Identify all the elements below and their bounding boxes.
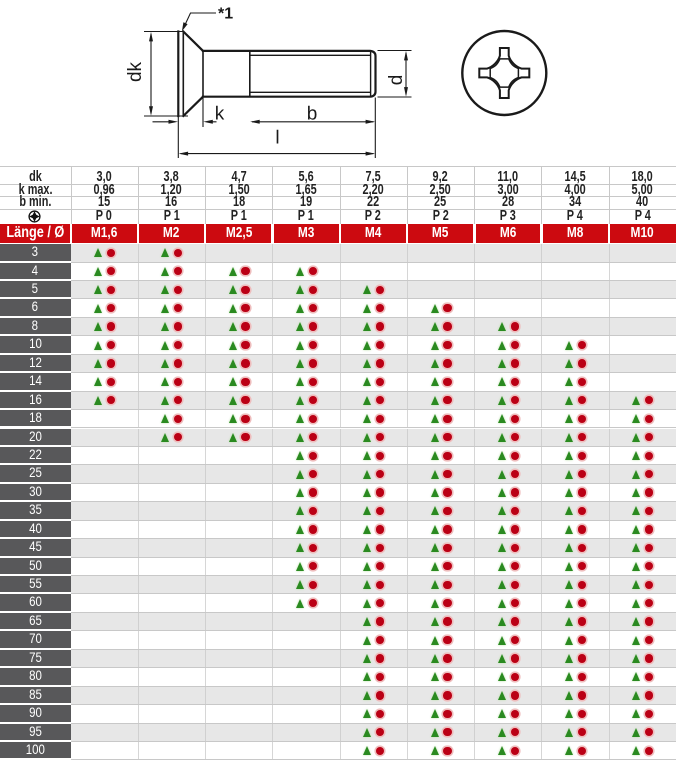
svg-text:b: b <box>307 103 318 124</box>
svg-text:k: k <box>215 103 225 124</box>
svg-text:*1: *1 <box>218 6 233 23</box>
svg-text:d: d <box>386 75 407 86</box>
svg-text:dk: dk <box>125 61 146 82</box>
svg-text:l: l <box>275 127 279 148</box>
